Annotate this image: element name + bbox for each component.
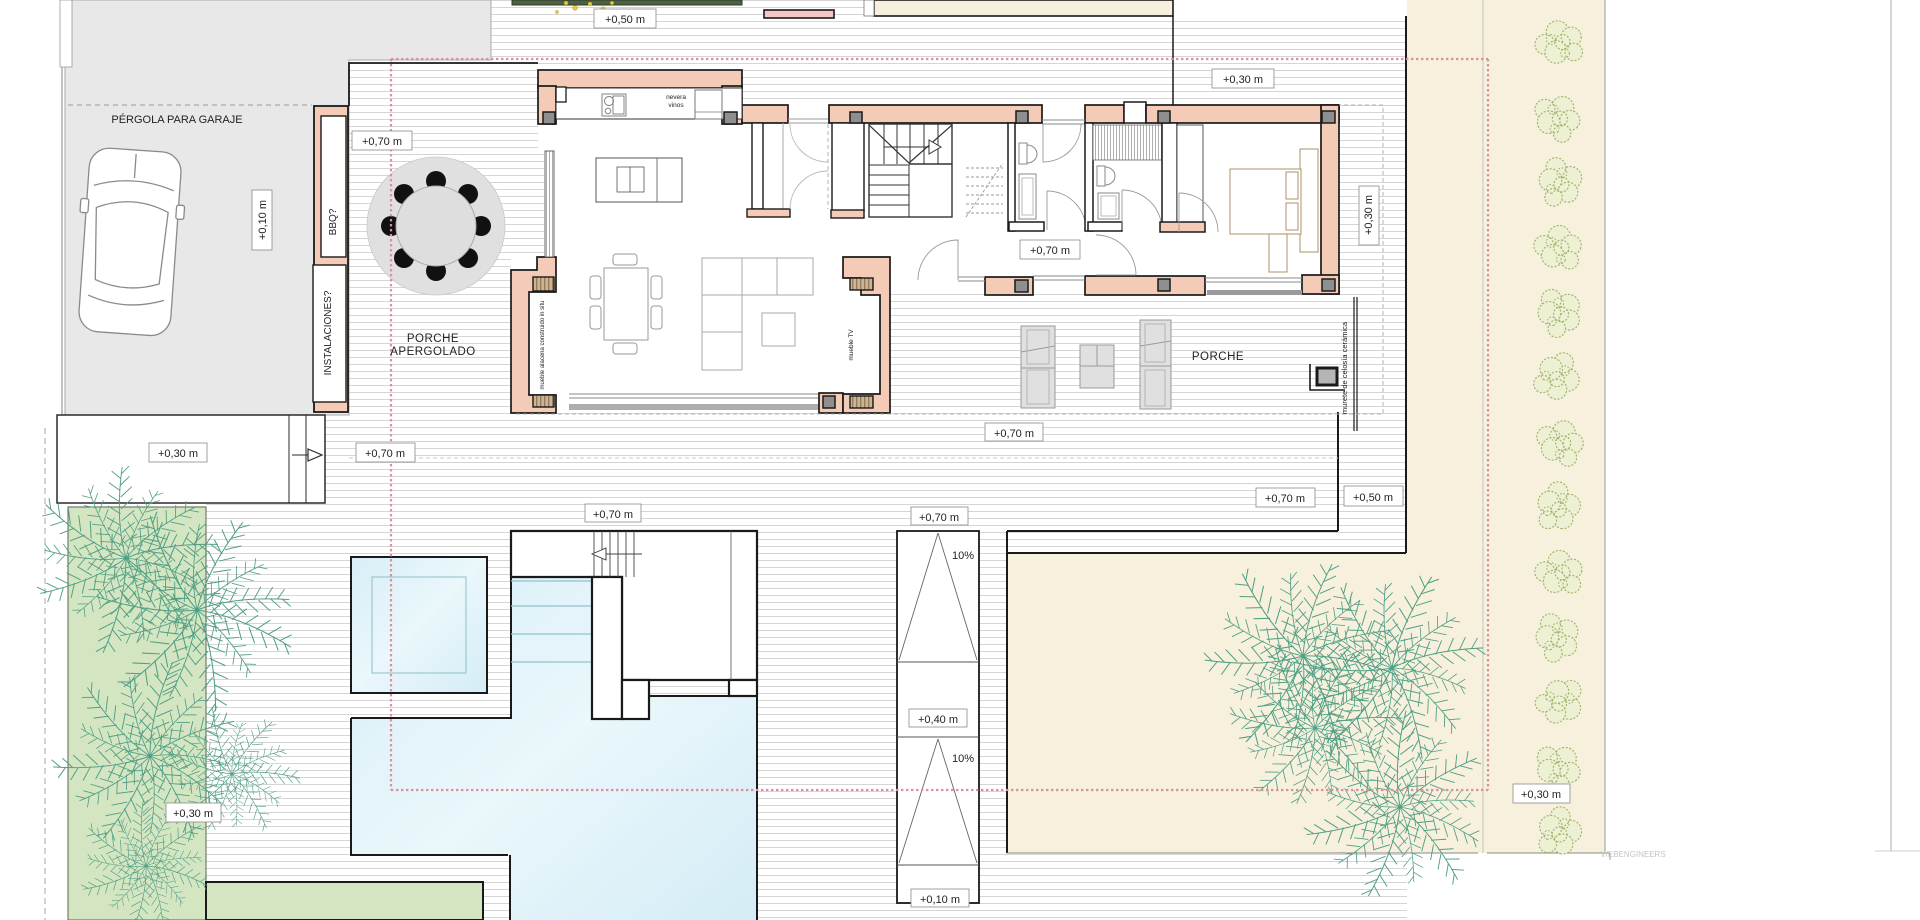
svg-text:+0,70 m: +0,70 m [1265,493,1305,505]
svg-text:PORCHE: PORCHE [407,333,459,345]
svg-text:+0,30 m: +0,30 m [1521,789,1561,801]
svg-text:+0,70 m: +0,70 m [365,448,405,460]
svg-text:+0,70 m: +0,70 m [994,428,1034,440]
svg-text:+0,30 m: +0,30 m [158,448,198,460]
svg-text:nevera: nevera [666,94,686,101]
svg-text:mueble TV: mueble TV [848,329,855,361]
svg-text:10%: 10% [952,550,974,562]
svg-text:+0,70 m: +0,70 m [1030,245,1070,257]
svg-text:vinos: vinos [668,102,684,109]
svg-text:+0,70 m: +0,70 m [362,136,402,148]
svg-text:APERGOLADO: APERGOLADO [390,346,476,358]
svg-text:INSTALACIONES?: INSTALACIONES? [323,290,334,375]
svg-text:murete de celosía cerámica: murete de celosía cerámica [1340,321,1349,414]
svg-text:+0,50 m: +0,50 m [605,14,645,26]
svg-text:+0,30 m: +0,30 m [1223,74,1263,86]
svg-text:V/EBENGINEERS: V/EBENGINEERS [1600,850,1665,859]
svg-text:+0,10 m: +0,10 m [920,894,960,906]
svg-text:+0,30 m: +0,30 m [1363,195,1375,235]
svg-text:mueble alacena construido in s: mueble alacena construido in situ [540,300,546,389]
svg-text:+0,50 m: +0,50 m [1353,492,1393,504]
svg-text:+0,40 m: +0,40 m [918,714,958,726]
svg-text:+0,70 m: +0,70 m [593,509,633,521]
svg-text:+0,30 m: +0,30 m [173,808,213,820]
svg-text:+0,70 m: +0,70 m [919,512,959,524]
svg-text:PORCHE: PORCHE [1192,351,1244,363]
svg-text:10%: 10% [952,753,974,765]
svg-text:+0,10 m: +0,10 m [257,200,269,240]
svg-text:BBQ?: BBQ? [328,208,339,235]
svg-text:PÉRGOLA PARA GARAJE: PÉRGOLA PARA GARAJE [111,113,242,126]
